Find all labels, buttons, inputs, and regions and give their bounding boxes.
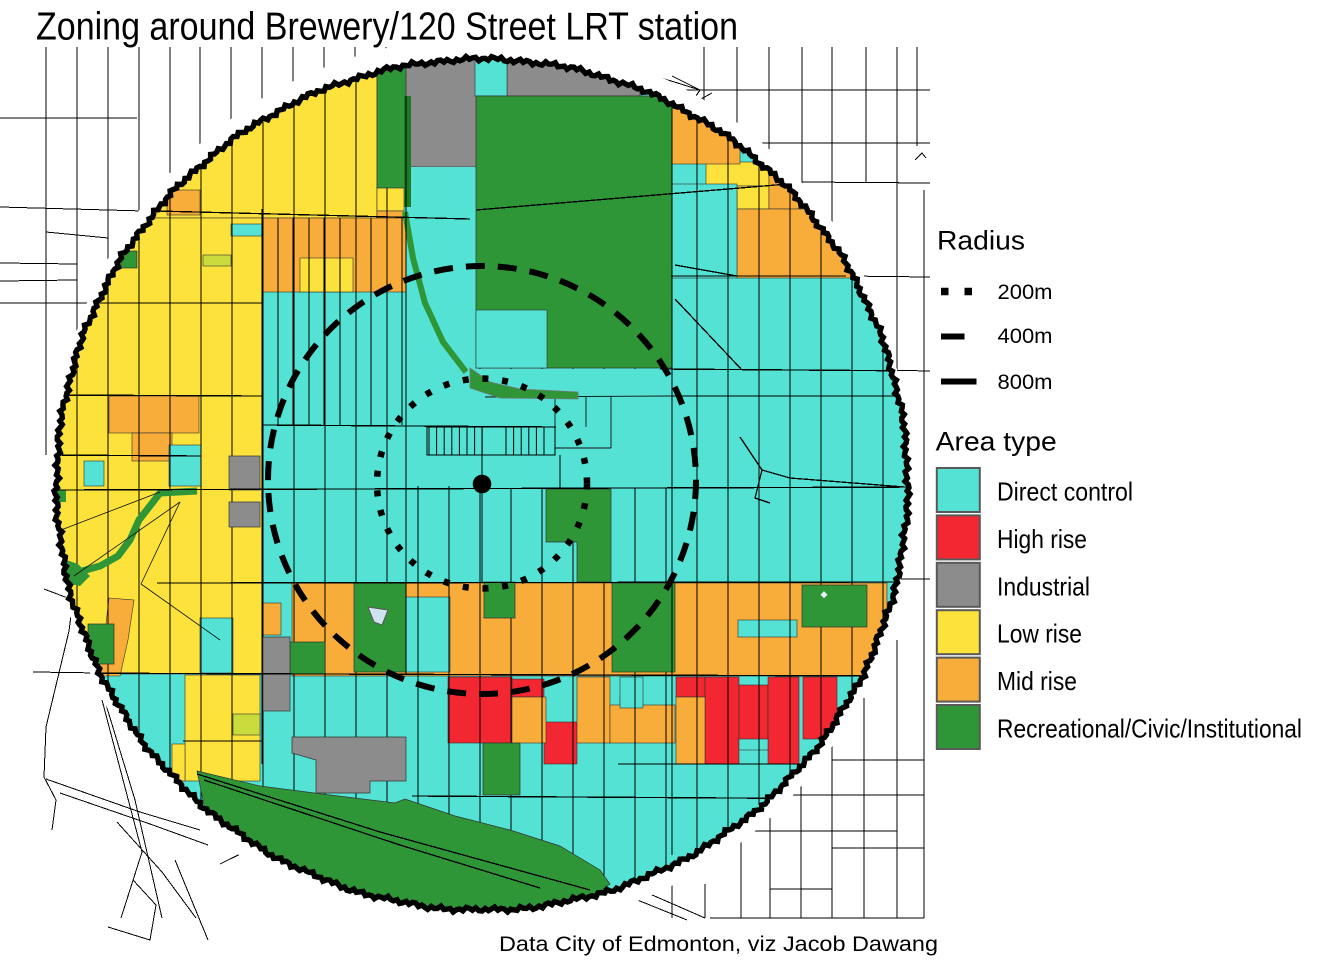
svg-text:Mid rise: Mid rise bbox=[997, 666, 1077, 696]
svg-text:Zoning around Brewery/120 Stre: Zoning around Brewery/120 Street LRT sta… bbox=[36, 6, 738, 49]
svg-text:High rise: High rise bbox=[997, 524, 1087, 554]
svg-text:Data City of Edmonton, viz Jac: Data City of Edmonton, viz Jacob Dawang bbox=[499, 932, 938, 956]
svg-text:Direct control: Direct control bbox=[997, 477, 1133, 507]
svg-text:Low rise: Low rise bbox=[997, 619, 1082, 649]
svg-text:Industrial: Industrial bbox=[997, 571, 1090, 601]
svg-text:Radius: Radius bbox=[937, 226, 1025, 256]
svg-text:800m: 800m bbox=[998, 371, 1053, 394]
svg-text:400m: 400m bbox=[998, 325, 1053, 348]
svg-text:Area type: Area type bbox=[936, 426, 1057, 456]
svg-text:Recreational/Civic/Institution: Recreational/Civic/Institutional bbox=[997, 714, 1302, 744]
svg-text:200m: 200m bbox=[998, 281, 1053, 304]
